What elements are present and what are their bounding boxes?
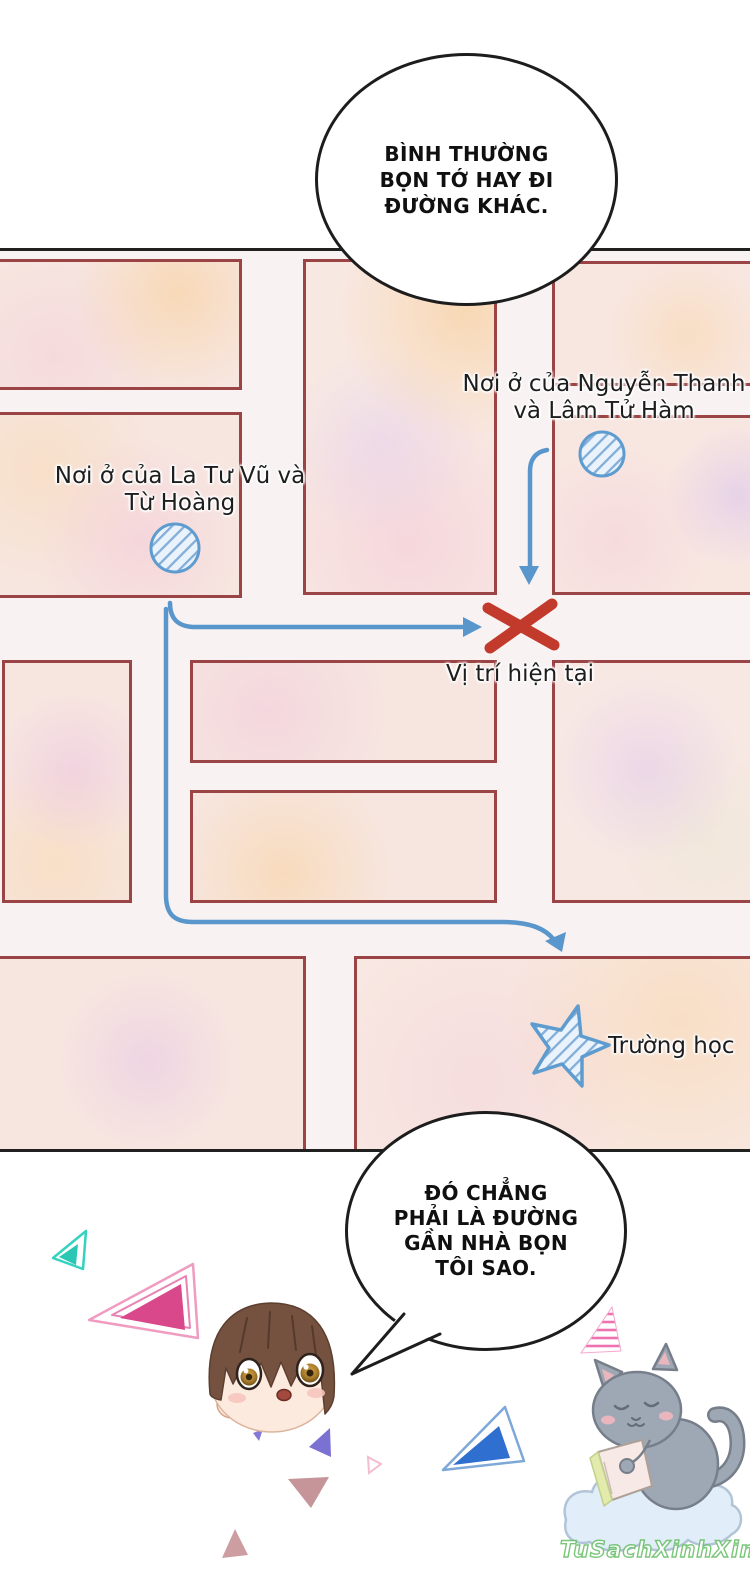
magenta-triangle [89, 1264, 198, 1338]
home-marker-right [580, 432, 624, 476]
label-school: Trường học [608, 1033, 748, 1060]
speech-bubble-top: BÌNH THƯỜNG BỌN TỚ HAY ĐI ĐƯỜNG KHÁC. [315, 53, 618, 306]
label-home-left-line1: Nơi ở của La Tư Vũ và [35, 463, 325, 490]
route-arrowhead-down [519, 566, 539, 585]
comic-page: Nơi ở của Nguyễn Thanh và Lâm Tử Hàm Nơi… [0, 0, 750, 1574]
route-arrowhead-right [463, 617, 482, 637]
label-current-position: Vị trí hiện tại [420, 661, 620, 688]
blue-triangle [443, 1407, 524, 1470]
faint-pink-triangle [368, 1457, 381, 1473]
current-position-x-marker [488, 604, 554, 648]
watermark: TuSachXinhXinh [560, 1538, 750, 1563]
bubble-top-line2: BỌN TỚ HAY ĐI [380, 167, 554, 193]
chibi-boy-head [209, 1303, 334, 1432]
route-left-home-to-x [170, 603, 462, 627]
mauve-triangle [288, 1477, 329, 1508]
cat-head [593, 1372, 681, 1448]
purple-triangle [309, 1428, 331, 1457]
cat-on-cloud-mascot [565, 1344, 741, 1551]
speech-bubble-tail [352, 1312, 440, 1374]
label-home-left-line2: Từ Hoàng [35, 490, 325, 517]
bubble-top-line3: ĐƯỜNG KHÁC. [384, 193, 548, 219]
cat-paw [620, 1459, 634, 1473]
map-panel: Nơi ở của Nguyễn Thanh và Lâm Tử Hàm Nơi… [0, 248, 750, 1152]
home-marker-left [151, 524, 199, 572]
small-mauve-triangle [222, 1529, 248, 1558]
bottom-decorations [0, 1140, 750, 1574]
label-home-right-line2: và Lâm Tử Hàm [454, 398, 750, 425]
label-home-left: Nơi ở của La Tư Vũ và Từ Hoàng [35, 463, 325, 517]
route-left-home-south-east [166, 609, 554, 940]
route-right-home-to-x [530, 450, 547, 567]
teal-triangle [53, 1231, 86, 1269]
label-home-right-line1: Nơi ở của Nguyễn Thanh [454, 371, 750, 398]
pink-striped-triangle [581, 1307, 621, 1353]
school-star-marker [532, 1006, 609, 1086]
bubble-top-line1: BÌNH THƯỜNG [384, 141, 548, 167]
label-home-right: Nơi ở của Nguyễn Thanh và Lâm Tử Hàm [454, 371, 750, 425]
